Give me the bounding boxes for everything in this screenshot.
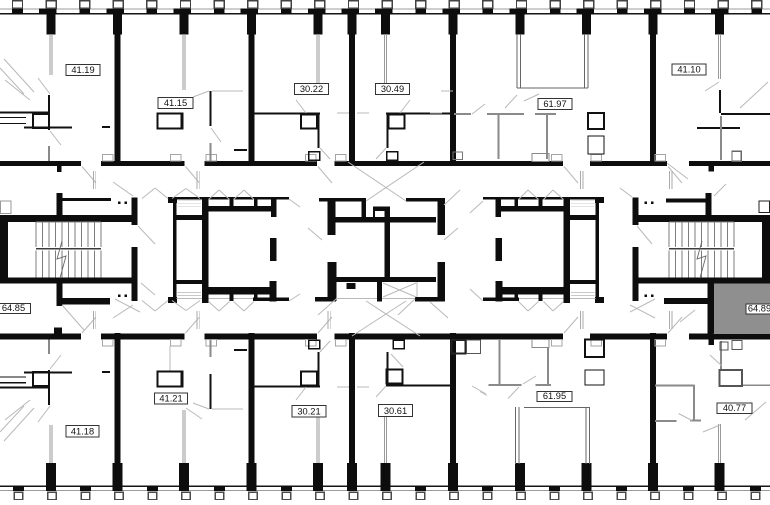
svg-text:40.77: 40.77 <box>723 403 746 413</box>
svg-text:64.85: 64.85 <box>2 303 25 313</box>
svg-text:61.95: 61.95 <box>543 391 566 401</box>
svg-text:61.97: 61.97 <box>543 99 566 109</box>
svg-text:41.10: 41.10 <box>677 65 700 75</box>
svg-text:30.22: 30.22 <box>300 84 323 94</box>
svg-text:41.19: 41.19 <box>71 65 94 75</box>
svg-text:64.89: 64.89 <box>748 304 770 314</box>
svg-text:41.21: 41.21 <box>159 394 182 404</box>
svg-text:30.49: 30.49 <box>381 84 404 94</box>
svg-text:30.21: 30.21 <box>297 407 320 417</box>
svg-text:30.61: 30.61 <box>384 406 407 416</box>
svg-text:41.18: 41.18 <box>71 427 94 437</box>
svg-text:41.15: 41.15 <box>164 98 187 108</box>
